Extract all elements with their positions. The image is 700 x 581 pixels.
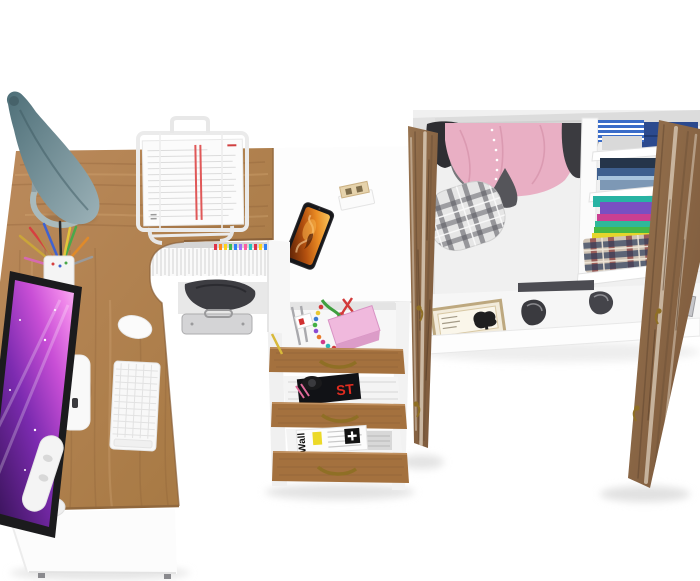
keyboard (110, 361, 161, 451)
metal-case (182, 310, 252, 334)
magazine-title: Wall (296, 432, 308, 453)
yellow-sticker (312, 432, 322, 446)
white-desktop (272, 146, 421, 303)
lamp-cap (9, 96, 19, 106)
product-render-stage: ST Wall (0, 0, 700, 581)
desktop-surface (272, 146, 421, 303)
desk-leg-panel (268, 240, 290, 334)
furniture-render: ST Wall (0, 0, 700, 581)
spacebar (114, 439, 152, 448)
papers (142, 139, 243, 226)
binder-tabs (214, 244, 267, 250)
magazine-masthead: ST (335, 380, 355, 398)
desk-foot (164, 574, 171, 579)
desk-foot (38, 573, 45, 578)
